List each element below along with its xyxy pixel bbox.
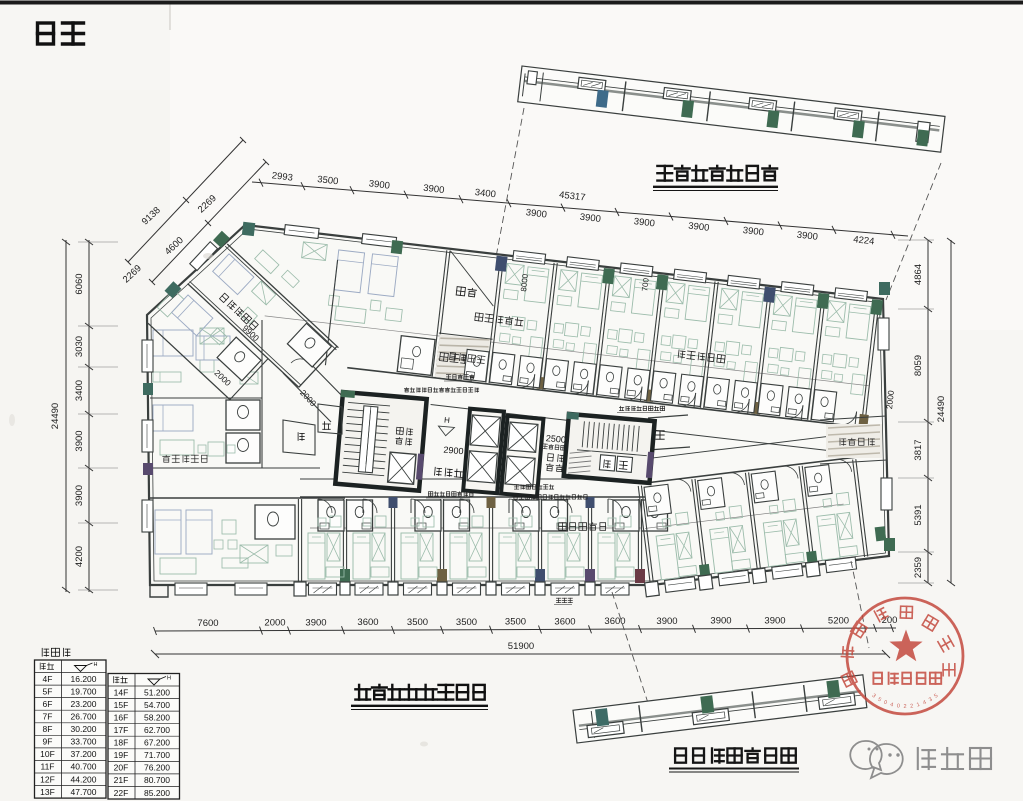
svg-text:4864: 4864 [913, 264, 924, 285]
svg-text:67.200: 67.200 [144, 738, 170, 748]
svg-text:3500: 3500 [505, 617, 526, 628]
svg-text:4200: 4200 [74, 546, 85, 567]
svg-text:17F: 17F [114, 725, 129, 735]
svg-text:2900: 2900 [443, 445, 464, 457]
svg-text:8059: 8059 [913, 355, 924, 376]
svg-text:18F: 18F [114, 738, 129, 748]
svg-text:8000: 8000 [519, 273, 530, 292]
svg-text:3600: 3600 [604, 616, 625, 627]
svg-text:7600: 7600 [197, 618, 218, 629]
svg-text:9F: 9F [43, 737, 53, 747]
svg-text:51.200: 51.200 [144, 687, 170, 697]
svg-text:3600: 3600 [554, 616, 575, 627]
svg-text:11F: 11F [40, 762, 54, 772]
svg-text:15F: 15F [114, 700, 129, 710]
svg-text:3500: 3500 [407, 617, 428, 628]
svg-text:16.200: 16.200 [71, 674, 97, 684]
svg-text:47.700: 47.700 [71, 787, 97, 797]
svg-text:2: 2 [903, 704, 906, 710]
svg-text:2000: 2000 [884, 389, 896, 409]
svg-text:6060: 6060 [74, 273, 85, 294]
svg-text:2000: 2000 [264, 618, 285, 629]
svg-text:H: H [94, 662, 98, 668]
svg-text:5391: 5391 [913, 504, 924, 525]
svg-text:8F: 8F [43, 724, 53, 734]
svg-text:2359: 2359 [913, 557, 924, 578]
svg-text:20F: 20F [114, 763, 129, 773]
svg-text:3500: 3500 [456, 617, 477, 628]
svg-text:3030: 3030 [74, 336, 85, 357]
svg-text:3400: 3400 [74, 380, 85, 401]
svg-text:54.700: 54.700 [144, 700, 170, 710]
svg-text:44.200: 44.200 [71, 774, 97, 784]
svg-text:19.700: 19.700 [71, 686, 97, 696]
svg-text:26.700: 26.700 [71, 712, 97, 722]
svg-text:23.200: 23.200 [71, 699, 97, 709]
svg-text:62.700: 62.700 [144, 725, 170, 735]
svg-text:58.200: 58.200 [144, 713, 170, 723]
svg-text:12F: 12F [40, 774, 55, 784]
svg-text:30.200: 30.200 [71, 724, 97, 734]
svg-text:2500: 2500 [545, 433, 566, 445]
svg-text:13F: 13F [40, 787, 55, 797]
svg-text:40.700: 40.700 [71, 762, 97, 772]
svg-text:14F: 14F [114, 687, 129, 697]
svg-text:71.700: 71.700 [144, 750, 170, 760]
svg-text:5F: 5F [43, 686, 53, 696]
svg-text:80.700: 80.700 [144, 775, 170, 785]
svg-text:3600: 3600 [357, 617, 378, 628]
svg-text:700: 700 [640, 277, 650, 292]
svg-text:51900: 51900 [508, 641, 534, 652]
svg-text:37.200: 37.200 [71, 749, 97, 759]
svg-text:85.200: 85.200 [144, 788, 170, 798]
svg-text:3900: 3900 [74, 485, 85, 506]
svg-text:33.700: 33.700 [71, 737, 97, 747]
svg-text:24490: 24490 [50, 403, 61, 429]
svg-text:5200: 5200 [828, 615, 849, 626]
svg-text:19F: 19F [114, 750, 129, 760]
svg-text:3817: 3817 [913, 439, 924, 460]
svg-text:21F: 21F [114, 775, 129, 785]
svg-text:4F: 4F [43, 674, 53, 684]
svg-text:H: H [444, 416, 451, 425]
svg-text:3900: 3900 [710, 616, 731, 627]
svg-text:7F: 7F [43, 712, 53, 722]
svg-text:16F: 16F [114, 713, 129, 723]
svg-text:3900: 3900 [305, 617, 326, 628]
svg-text:22F: 22F [114, 788, 129, 798]
svg-text:3900: 3900 [764, 616, 785, 627]
svg-text:6F: 6F [43, 699, 53, 709]
svg-text:3900: 3900 [656, 616, 677, 627]
svg-text:H: H [167, 676, 171, 682]
svg-text:3900: 3900 [74, 430, 85, 451]
svg-text:10F: 10F [40, 749, 55, 759]
svg-text:76.200: 76.200 [144, 763, 170, 773]
svg-text:24490: 24490 [936, 396, 947, 422]
